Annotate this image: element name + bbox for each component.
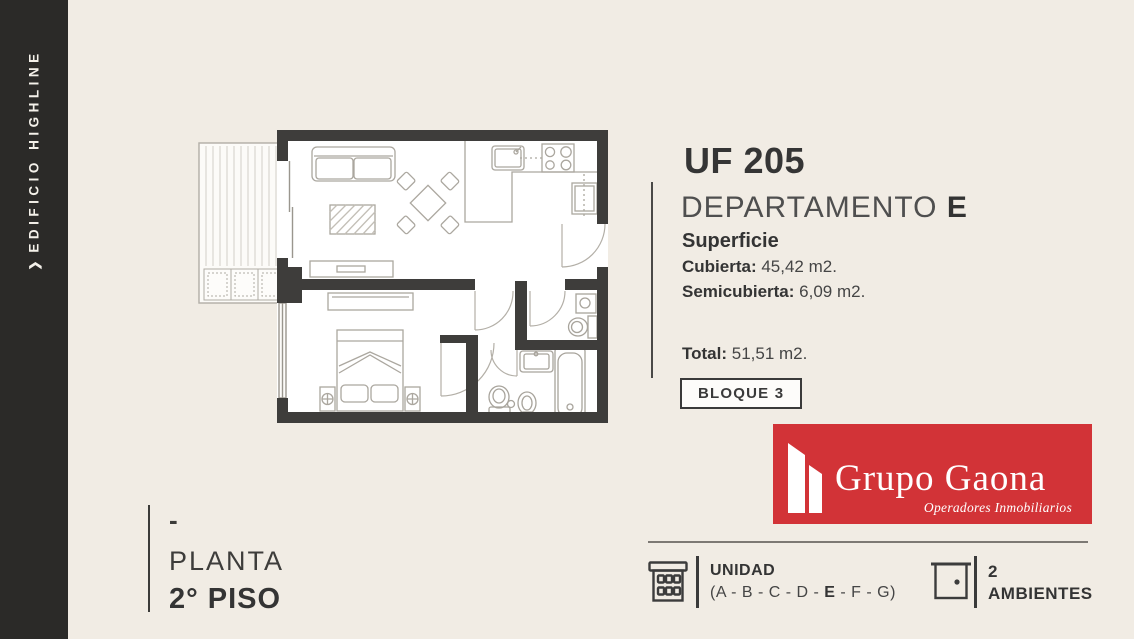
footer-divider [648,541,1088,543]
sidebar: ❯EDIFICIO HIGHLINE [0,0,68,639]
floor-label-piso: 2° PISO [169,583,281,616]
info-vertical-rule [651,182,653,378]
balcony [199,143,288,303]
department-letter: E [947,191,968,224]
building-name: EDIFICIO HIGHLINE [27,49,42,252]
building-icon [648,561,688,603]
semicubierta-value: 6,09 m2. [794,282,865,301]
floor-plan [190,120,620,440]
cubierta-value: 45,42 m2. [757,257,837,276]
department-label: DEPARTAMENTO [681,191,937,224]
semicubierta-label: Semicubierta: [682,282,794,301]
block-badge: BLOQUE 3 [680,378,802,409]
unidad-letters: (A - B - C - D - E - F - G) [710,585,896,601]
total-value: 51,51 m2. [727,344,807,363]
surface-row-cubierta: Cubierta: 45,42 m2. [682,257,837,277]
floor-label-dash: - [169,505,178,536]
rooms-count: 2 [988,563,1093,580]
unit-selected: E [824,584,835,601]
unidad-title: UNIDAD [710,563,896,579]
door-icon [931,562,971,602]
footer-separator-right [974,556,977,608]
footer-separator-left [696,556,699,608]
surface-row-total: Total: 51,51 m2. [682,344,807,364]
building-name-vertical: ❯EDIFICIO HIGHLINE [27,49,42,270]
floor-label-rule [148,505,150,612]
units-suffix: - F - G) [835,584,895,601]
total-label: Total: [682,344,727,363]
chevron-right-icon: ❯ [28,259,42,271]
bedroom-window [279,303,286,398]
surface-row-semicubierta: Semicubierta: 6,09 m2. [682,282,865,302]
company-tagline: Operadores Inmobiliarios [924,500,1072,516]
surface-title: Superficie [682,230,779,253]
rooms-label: AMBIENTES [988,585,1093,602]
company-logo: Grupo Gaona Operadores Inmobiliarios [773,424,1092,524]
department-title: DEPARTAMENTO E [681,191,968,225]
company-name: Grupo Gaona [835,460,1046,497]
units-prefix: (A - B - C - D - [710,584,824,601]
ambientes-block: 2 AMBIENTES [988,563,1093,602]
balcony-bench [204,269,284,300]
buildings-logo-icon [788,435,828,513]
unidad-block: UNIDAD (A - B - C - D - E - F - G) [710,563,896,601]
cubierta-label: Cubierta: [682,257,757,276]
unit-code: UF 205 [684,140,805,182]
floor-label-planta: PLANTA [169,546,284,577]
